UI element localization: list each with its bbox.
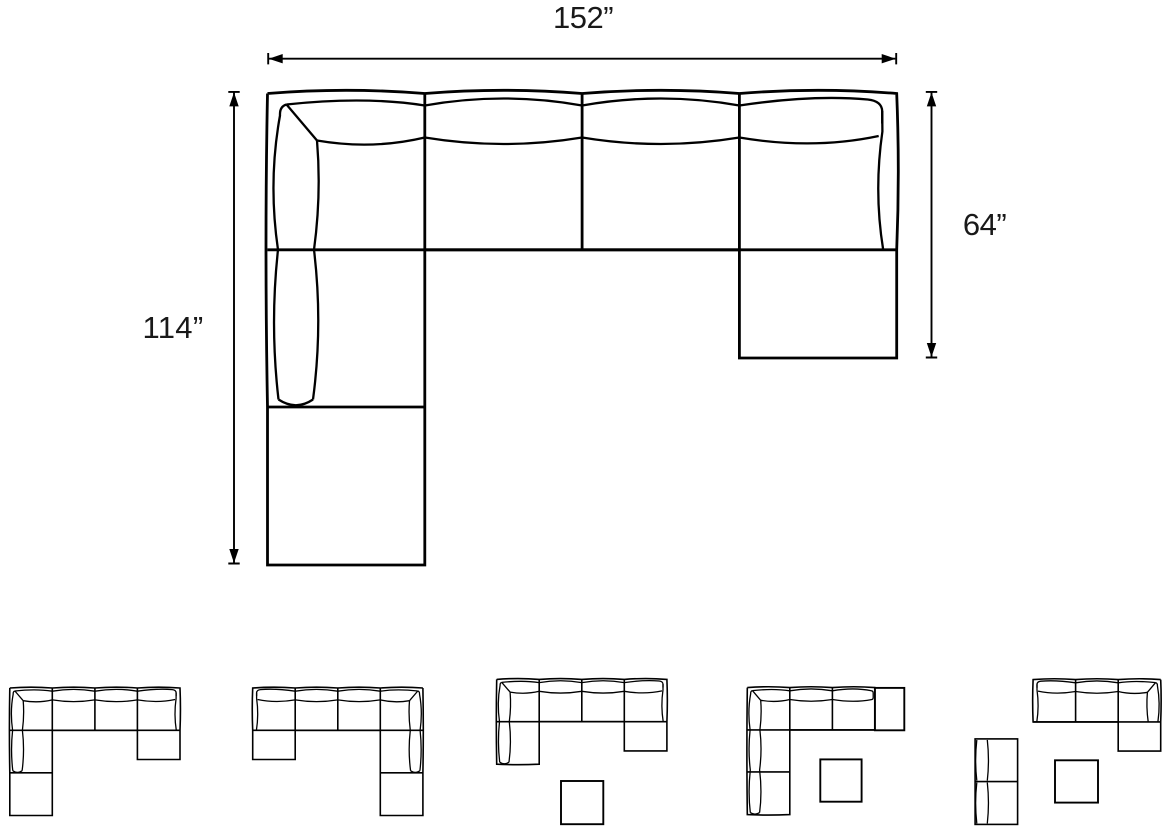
svg-text:64”: 64” (963, 207, 1006, 242)
svg-text:152”: 152” (553, 0, 613, 35)
svg-text:114”: 114” (143, 310, 204, 345)
